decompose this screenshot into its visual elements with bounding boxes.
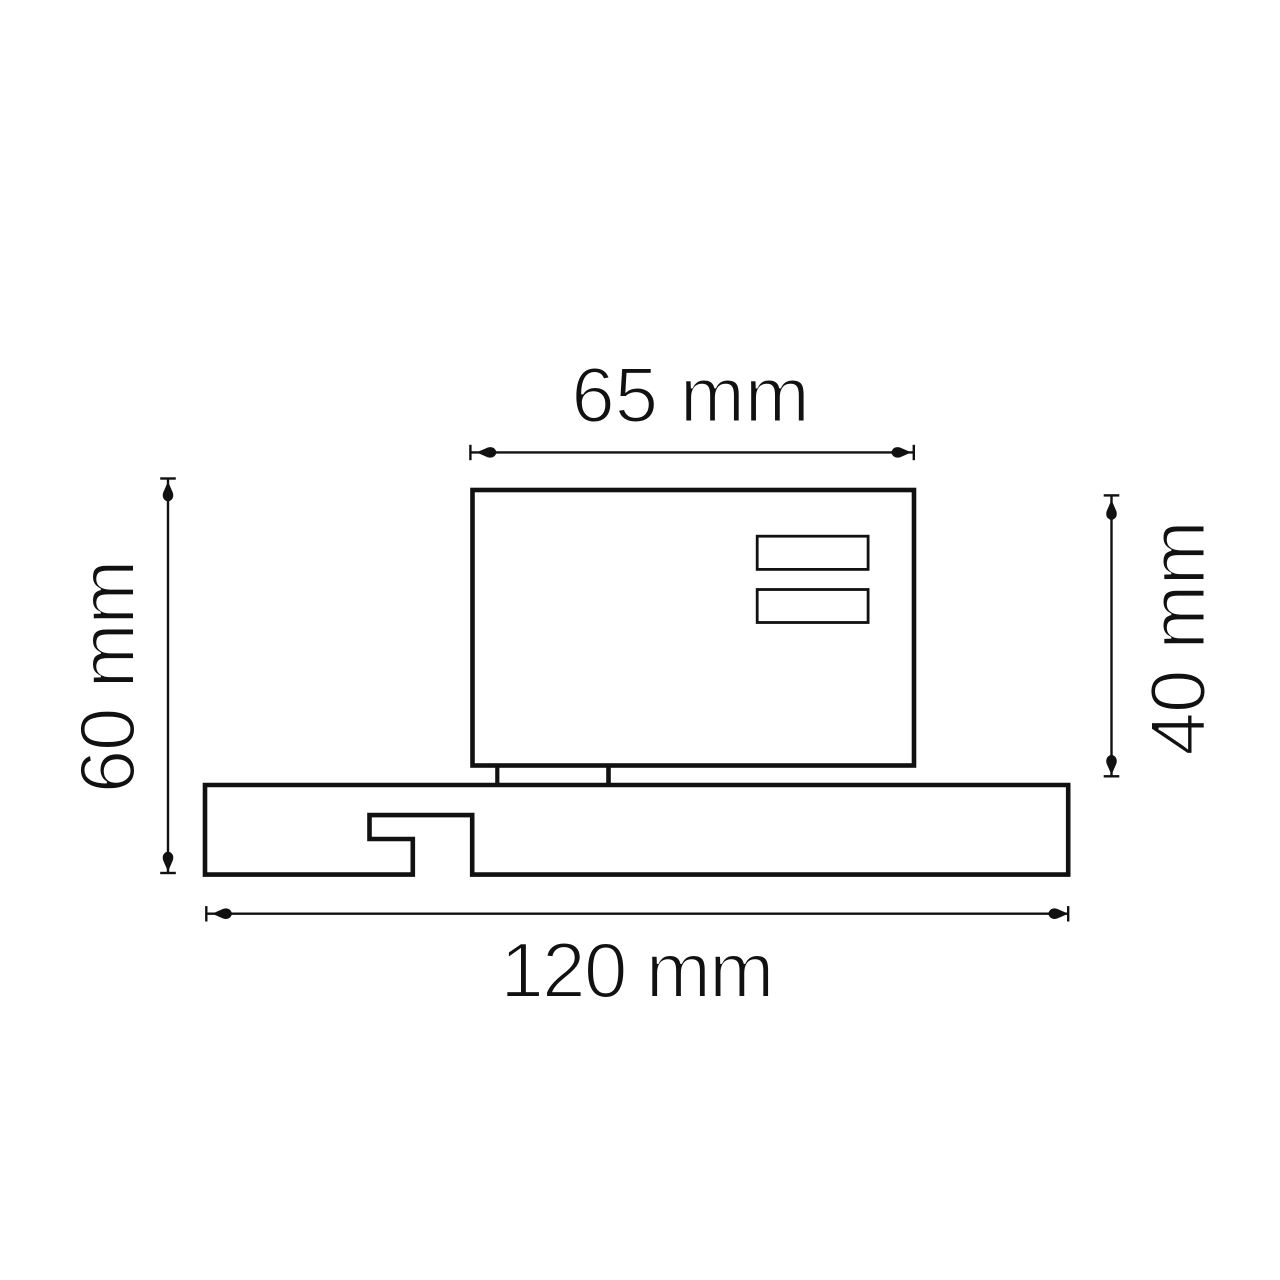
svg-text:120 mm: 120 mm: [500, 926, 772, 1014]
svg-text:40 mm: 40 mm: [1133, 521, 1221, 755]
svg-text:65 mm: 65 mm: [571, 350, 809, 438]
svg-text:60 mm: 60 mm: [63, 561, 151, 793]
